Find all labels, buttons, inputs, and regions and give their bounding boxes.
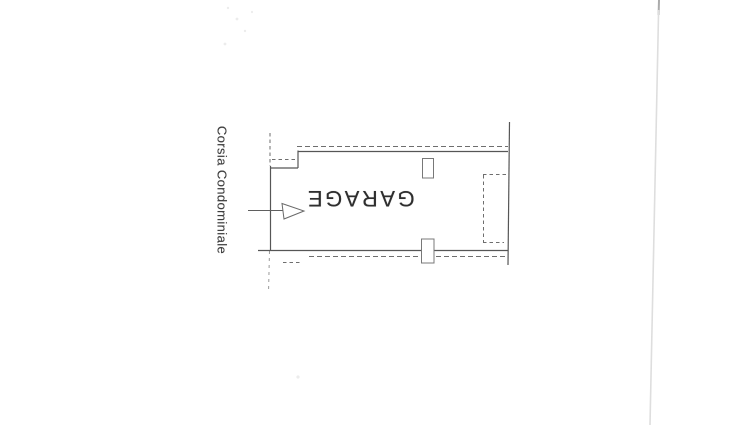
pillar-bottom <box>422 239 435 263</box>
entrance-arrow-icon <box>248 204 304 220</box>
dashed-niche <box>483 175 506 244</box>
scanned-floor-plan-page: GARAGE Corsia Condominiale <box>0 0 750 425</box>
floor-plan-drawing <box>0 0 750 425</box>
garage-label: GARAGE <box>302 184 418 212</box>
scan-speckles <box>224 7 300 379</box>
driveway-label: Corsia Condominiale <box>215 126 230 254</box>
scan-page-edge <box>650 0 659 425</box>
pillar-top <box>423 159 434 179</box>
